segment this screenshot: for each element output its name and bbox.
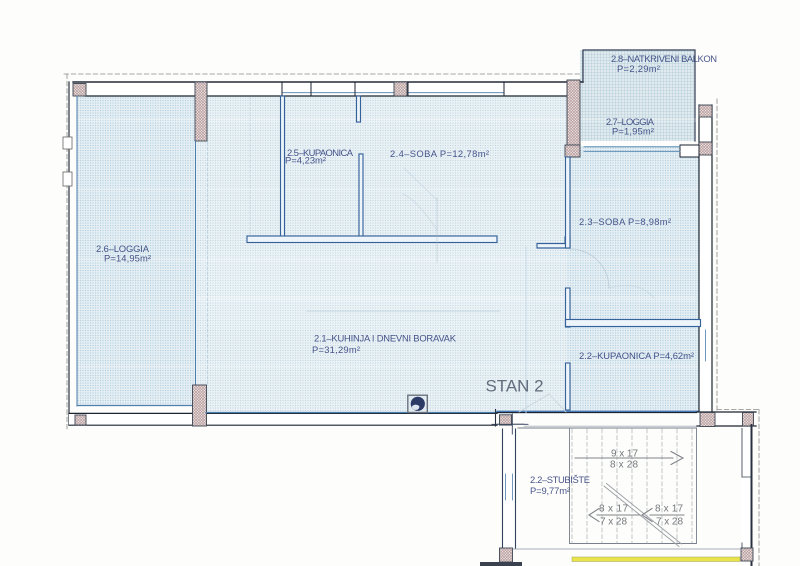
svg-text:8 x 17: 8 x 17 — [599, 504, 628, 515]
svg-text:P=31,29m²: P=31,29m² — [312, 344, 360, 355]
svg-text:2.1–KUHINJA I DNEVNI BORAVA: 2.1–KUHINJA I DNEVNI BORAVAK — [314, 333, 457, 344]
svg-text:7 x 28: 7 x 28 — [600, 517, 627, 528]
svg-text:2.4–SOBA P=12,78m²: 2.4–SOBA P=12,78m² — [390, 148, 489, 159]
svg-text:P=1,95m²: P=1,95m² — [612, 126, 654, 137]
svg-text:8 x 28: 8 x 28 — [610, 460, 638, 471]
svg-text:2.3–SOBA P=8,98m²: 2.3–SOBA P=8,98m² — [579, 216, 671, 227]
svg-text:2.2–KUPAONICA P=4,62m²: 2.2–KUPAONICA P=4,62m² — [579, 350, 694, 361]
svg-text:9 x 17: 9 x 17 — [611, 449, 638, 460]
svg-text:STAN 2: STAN 2 — [486, 377, 544, 396]
svg-text:7 x 28: 7 x 28 — [656, 517, 683, 528]
svg-text:P=14,95m²: P=14,95m² — [104, 253, 151, 264]
svg-text:P=4,23m²: P=4,23m² — [285, 155, 326, 166]
svg-text:8 x 17: 8 x 17 — [655, 504, 683, 515]
svg-text:P=9,77m²: P=9,77m² — [530, 485, 570, 496]
svg-text:2.2–STUBIŠTE: 2.2–STUBIŠTE — [530, 474, 590, 485]
svg-text:P=2,29m²: P=2,29m² — [617, 63, 660, 74]
